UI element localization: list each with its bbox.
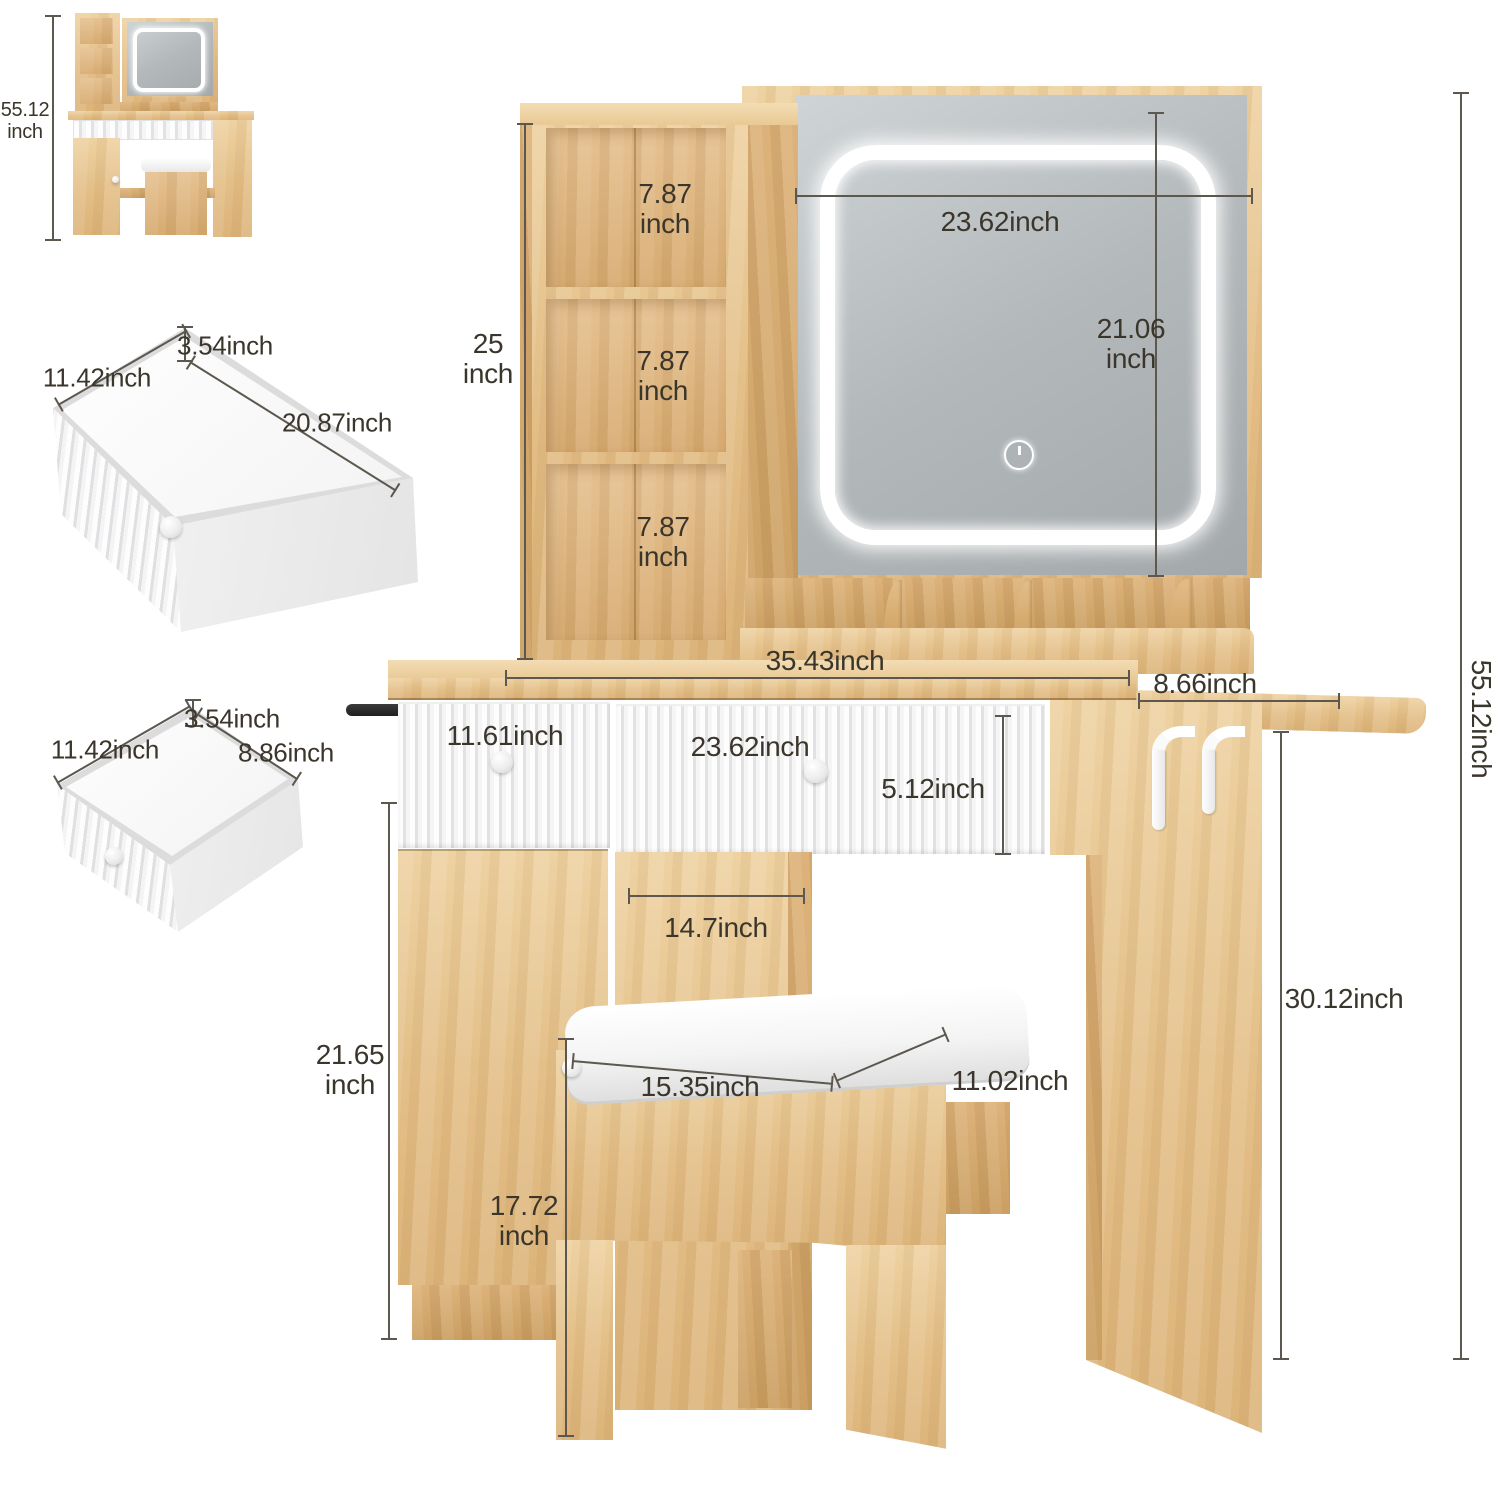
label-small-drawer-width: 11.42inch — [51, 735, 159, 766]
label-shelf-top: 7.87 inch — [638, 179, 691, 239]
label-left-drawer-width: 11.61inch — [447, 720, 564, 752]
dim-desktop-width — [505, 677, 1130, 679]
hook-icon — [1202, 750, 1215, 814]
shelf-opening-1 — [546, 128, 726, 287]
dim-side-shelf-depth — [1138, 700, 1340, 702]
label-knee-width: 14.7inch — [664, 912, 767, 944]
power-icon — [1004, 440, 1034, 470]
thumb-stool-cushion — [141, 158, 211, 172]
drawer-knob — [105, 847, 123, 865]
dim-overall-height — [1460, 92, 1462, 1360]
label-stool-width: 15.35inch — [641, 1071, 760, 1103]
label-tower-height: 25 inch — [463, 329, 513, 389]
label-cabinet-height-num: 21.65 — [316, 1040, 385, 1070]
thumb-led-strip — [133, 28, 205, 92]
label-overall-height: 55.12inch — [1465, 660, 1497, 779]
label-thumb-height-num: 55.12 — [1, 99, 50, 121]
dim-door-height — [565, 1038, 567, 1437]
dim-drawer-height — [1002, 715, 1004, 855]
label-shelf-bot-unit: inch — [636, 542, 689, 572]
label-large-drawer-height: 3.54inch — [177, 331, 273, 362]
stool-back-leg — [738, 1250, 792, 1408]
thumb-stool-body — [145, 172, 207, 235]
desktop-front-line — [388, 698, 1138, 700]
label-shelf-top-unit: inch — [638, 209, 691, 239]
drawer-knob — [160, 516, 182, 538]
dim-cabinet-height — [388, 802, 390, 1340]
shelf-back-seam — [634, 128, 636, 287]
label-door-height-num: 17.72 — [490, 1191, 559, 1221]
label-large-drawer-length: 20.87inch — [282, 408, 392, 439]
thumb-door-knob — [112, 176, 119, 183]
label-drawer-height: 5.12inch — [881, 773, 984, 805]
label-tower-height-unit: inch — [463, 359, 513, 389]
label-mirror-width: 23.62inch — [941, 206, 1060, 238]
label-mirror-height-unit: inch — [1097, 344, 1166, 374]
thumb-cabinet — [73, 138, 120, 235]
thumb-desktop — [68, 111, 254, 120]
stool-right-panel — [846, 1245, 946, 1455]
label-desk-height: 30.12inch — [1285, 983, 1404, 1015]
shelf-tower-top — [520, 103, 798, 125]
thumb-shelf-opening — [80, 48, 113, 74]
label-shelf-mid-num: 7.87 — [636, 346, 689, 376]
label-tower-height-num: 25 — [463, 329, 513, 359]
desk-leg-inner-edge — [1086, 855, 1102, 1360]
label-thumb-overall-height: 55.12 inch — [1, 99, 50, 143]
dim-desk-height — [1280, 731, 1282, 1360]
label-shelf-top-num: 7.87 — [638, 179, 691, 209]
label-mirror-height-num: 21.06 — [1097, 314, 1166, 344]
dim-tower-height — [524, 123, 526, 660]
label-small-drawer-depth: 8.86inch — [238, 738, 334, 769]
dim-knee-width — [628, 895, 805, 897]
thumb-drawer-row — [73, 120, 222, 140]
label-shelf-bot: 7.87 inch — [636, 512, 689, 572]
left-drawer-knob — [491, 751, 513, 773]
label-door-height-unit: inch — [490, 1221, 559, 1251]
label-large-drawer-width: 11.42inch — [43, 363, 151, 394]
label-shelf-mid-unit: inch — [636, 376, 689, 406]
label-side-shelf-depth: 8.66inch — [1153, 668, 1256, 700]
thumb-shelf-opening — [80, 78, 113, 104]
label-shelf-bot-num: 7.87 — [636, 512, 689, 542]
dim-mirror-width — [795, 195, 1253, 197]
label-door-height: 17.72 inch — [490, 1191, 559, 1251]
dim-thumb-overall-height — [52, 15, 54, 241]
thumb-desk-leg — [213, 120, 252, 237]
label-mirror-height: 21.06 inch — [1097, 314, 1166, 374]
label-stool-depth: 11.02inch — [952, 1065, 1069, 1097]
label-cabinet-height: 21.65 inch — [316, 1040, 385, 1100]
power-icon-bar — [1018, 446, 1021, 455]
product-dimension-diagram: 55.12 inch 3.54inch 11.42inch 20.87inch … — [0, 0, 1500, 1500]
desktop-edge — [388, 678, 1138, 700]
label-thumb-height-unit: inch — [1, 121, 50, 143]
label-shelf-mid: 7.87 inch — [636, 346, 689, 406]
vanity-thumbnail — [44, 8, 258, 248]
label-cabinet-height-unit: inch — [316, 1070, 385, 1100]
thumb-shelf-opening — [80, 18, 113, 44]
label-center-drawer-width: 23.62inch — [691, 731, 810, 763]
label-small-drawer-height: 3.54inch — [184, 704, 280, 735]
label-desktop-width: 35.43inch — [766, 645, 885, 677]
hook-icon — [1152, 750, 1165, 830]
